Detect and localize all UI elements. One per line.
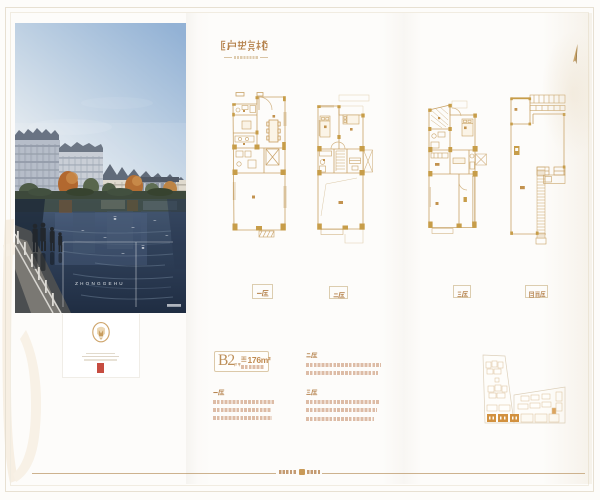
svg-text:ZHONGGEHU: ZHONGGEHU [75, 281, 125, 286]
